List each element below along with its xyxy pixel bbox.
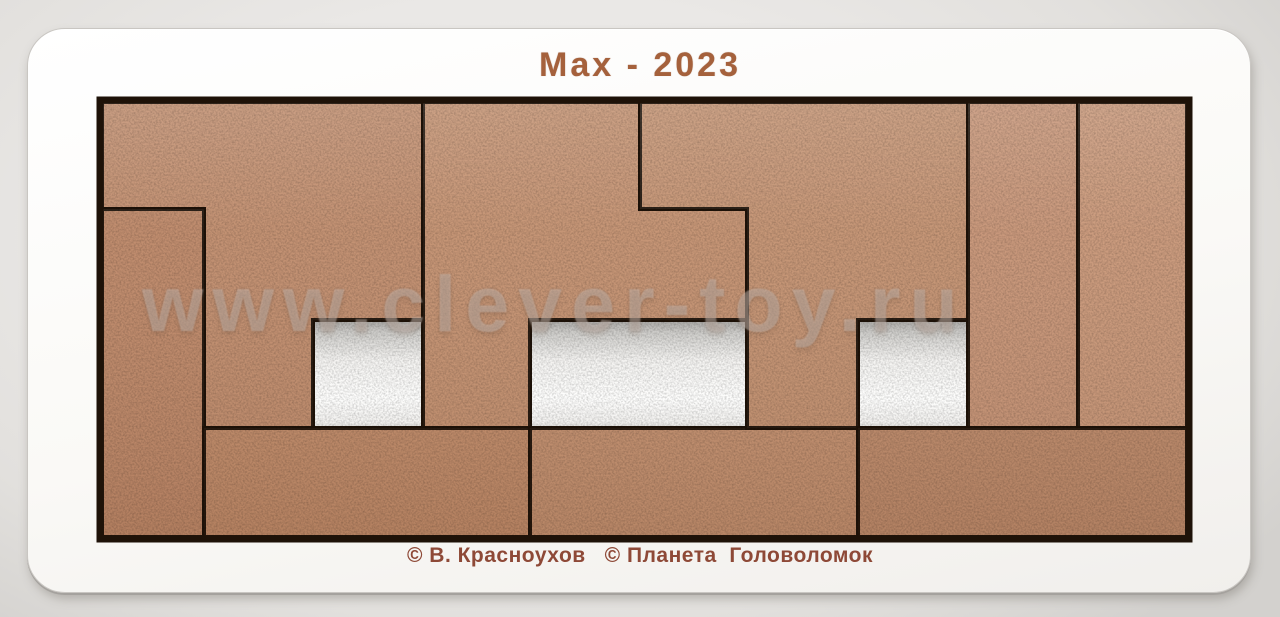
puzzle-svg — [0, 0, 1280, 617]
puzzle-piece-I[interactable] — [858, 428, 1187, 537]
photo-background: Max - 2023 www.clever-toy.ru © — [0, 0, 1280, 617]
credits-line: © В. Красноухов © Планета Головоломок — [0, 544, 1280, 568]
puzzle-piece-G[interactable] — [968, 102, 1078, 428]
puzzle-piece-E[interactable] — [530, 428, 858, 537]
puzzle-piece-D[interactable] — [204, 428, 530, 537]
puzzle-piece-H[interactable] — [1078, 102, 1187, 428]
puzzle-piece-B[interactable] — [102, 209, 204, 537]
